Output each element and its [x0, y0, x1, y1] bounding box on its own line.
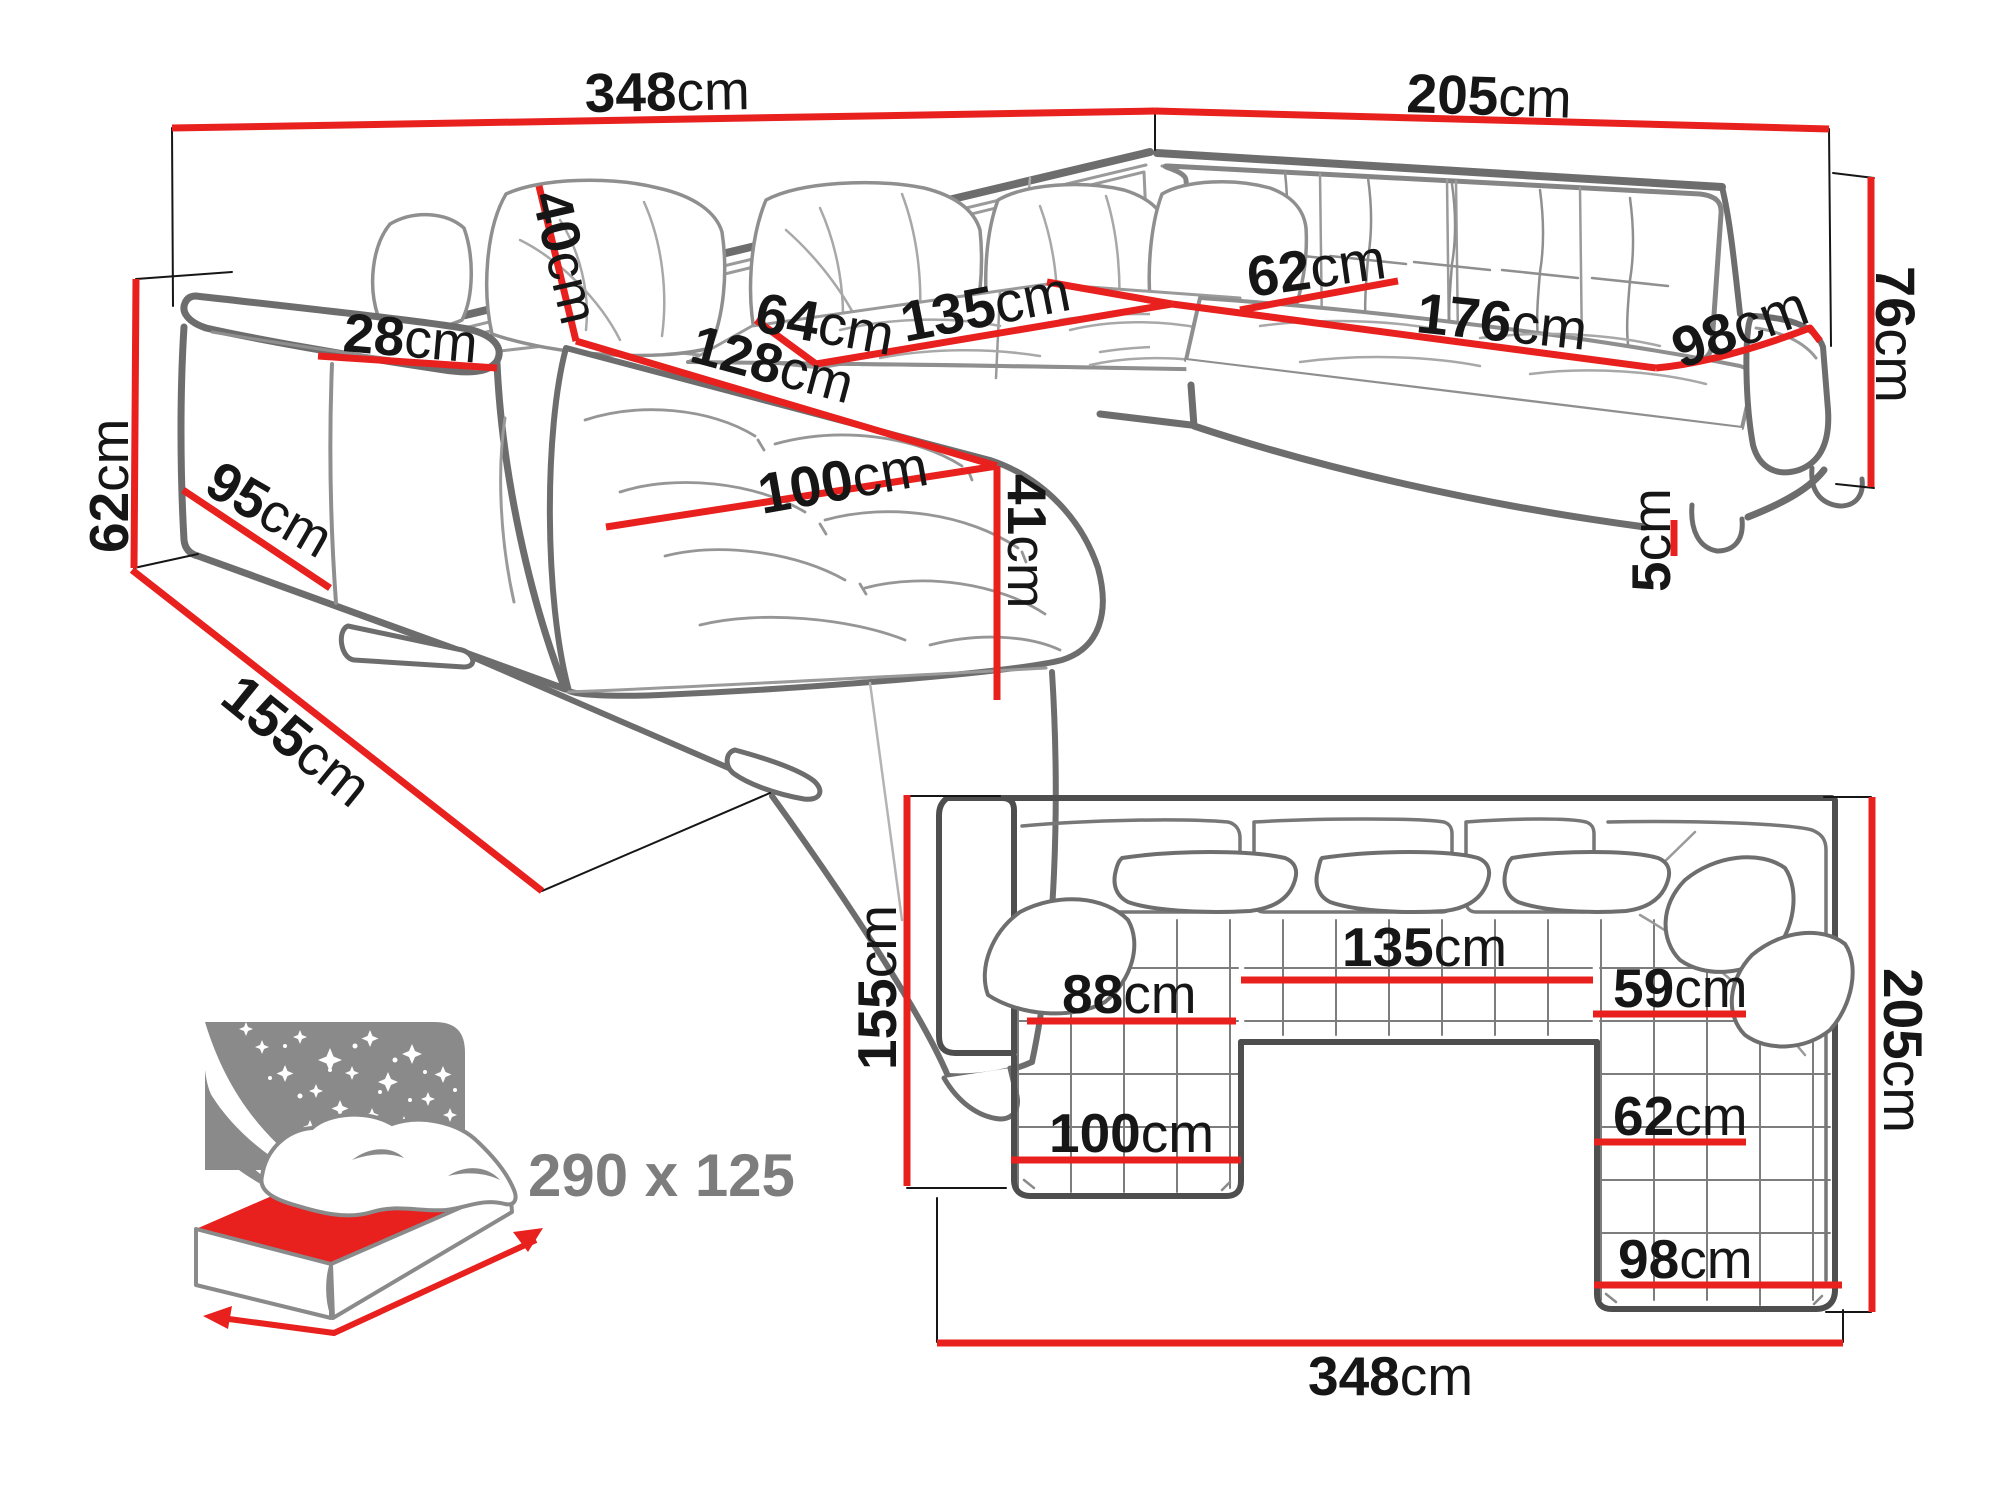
svg-text:76cm: 76cm: [1864, 266, 1927, 403]
svg-text:348cm: 348cm: [1308, 1345, 1473, 1407]
svg-text:5cm: 5cm: [1620, 488, 1682, 592]
svg-text:98cm: 98cm: [1618, 1228, 1753, 1290]
svg-text:135cm: 135cm: [1342, 916, 1507, 978]
svg-text:205cm: 205cm: [1872, 968, 1934, 1133]
svg-text:100cm: 100cm: [1049, 1102, 1214, 1164]
svg-text:155cm: 155cm: [846, 905, 908, 1070]
svg-text:290 x 125: 290 x 125: [528, 1142, 795, 1209]
svg-text:28cm: 28cm: [341, 301, 480, 374]
svg-text:348cm: 348cm: [584, 59, 750, 124]
svg-text:88cm: 88cm: [1062, 963, 1197, 1025]
svg-text:205cm: 205cm: [1406, 62, 1573, 130]
svg-text:62cm: 62cm: [78, 418, 140, 553]
svg-text:62cm: 62cm: [1613, 1085, 1748, 1147]
svg-text:59cm: 59cm: [1613, 957, 1748, 1019]
svg-text:41cm: 41cm: [996, 474, 1058, 609]
